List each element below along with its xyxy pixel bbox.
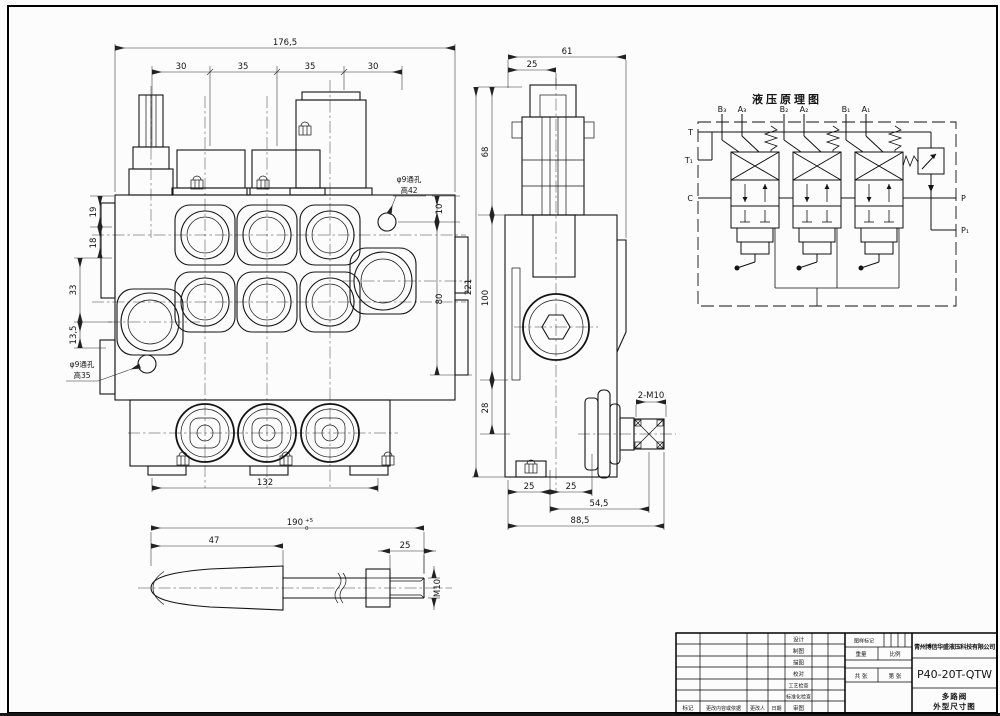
mounting-hole-top-right (378, 213, 396, 231)
lever-dimensions: 190 +5 0 47 25 M10 (151, 518, 443, 610)
engineering-drawing-sheet: 176,5 30 35 35 30 19 18 (0, 0, 1000, 716)
side-dimensions: 61 25 68 221 100 28 25 25 (464, 47, 666, 530)
dim-label-80: 80 (435, 294, 445, 305)
side-body-outline (505, 85, 664, 478)
title-block: 设计 制图 描图 校对 工艺检查 标准化检查 审图 标记 更改内容或依据 更改人… (676, 633, 997, 713)
dim-label-33: 33 (69, 285, 79, 296)
hole-note-top-right: φ9通孔 高42 (389, 174, 426, 214)
hole-note-text: 高42 (400, 185, 417, 195)
hole-note-bottom-left: φ9通孔 高35 (66, 359, 140, 381)
tolerance-lower: 0 (305, 526, 309, 532)
port-label-b2: B₂ (780, 105, 789, 114)
drawing-canvas: 176,5 30 35 35 30 19 18 (0, 0, 1000, 716)
titleblock-row-draft: 制图 (793, 647, 805, 655)
dim-label-foot25b: 25 (566, 482, 577, 492)
drawing-title-line2: 外型尺寸图 (933, 701, 976, 711)
port-label-t: T (687, 128, 693, 137)
port-label-b1: B₁ (842, 105, 851, 114)
dim-label-25: 25 (400, 541, 411, 551)
port-label-p1: P₁ (961, 226, 969, 235)
port-label-b3: B₃ (718, 105, 727, 114)
front-view: 176,5 30 35 35 30 19 18 (66, 38, 472, 492)
titleblock-row-design: 设计 (793, 636, 805, 644)
dim-label-s2: 35 (238, 62, 249, 72)
valve-section-1 (846, 114, 903, 271)
dim-label-47: 47 (209, 536, 220, 546)
front-ports (117, 205, 416, 462)
titleblock-row-standard-check: 标准化检查 (786, 694, 811, 701)
valve-section-2 (784, 114, 841, 271)
titleblock-changed-by: 更改人 (750, 705, 765, 712)
dim-label-10: 10 (435, 204, 445, 215)
titleblock-mark: 标记 (682, 704, 694, 712)
titleblock-row-process-check: 工艺检查 (788, 683, 808, 690)
titleblock-drawing-mark: 图样标记 (854, 638, 874, 645)
titleblock-weight: 重量 (855, 650, 867, 658)
side-view: 61 25 68 221 100 28 25 25 (464, 47, 676, 530)
dim-label-88-5: 88,5 (571, 516, 590, 526)
dim-label-132: 132 (257, 478, 273, 488)
port-label-a1: A₁ (862, 105, 871, 114)
titleblock-sheet-number: 第 张 (889, 672, 902, 680)
hole-note-text: φ9通孔 (70, 359, 95, 369)
valve-section-3 (722, 114, 779, 271)
port-label-a2: A₂ (800, 105, 809, 114)
titleblock-scale: 比例 (889, 650, 901, 658)
titleblock-change-content: 更改内容或依据 (706, 705, 741, 712)
drawing-title-line1: 多路阀 (942, 691, 968, 701)
dim-label-18: 18 (89, 238, 99, 249)
dim-label-total-width: 176,5 (273, 38, 297, 48)
titleblock-date: 日期 (771, 706, 781, 712)
schematic-title: 液压原理图 (752, 92, 822, 106)
dim-label-68: 68 (481, 147, 491, 158)
company-name: 青州博信华盛液压科技有限公司 (914, 643, 995, 651)
dim-label-61: 61 (562, 47, 573, 57)
tolerance-upper: +5 (305, 518, 314, 524)
drawing-number: P40-20T-QTW (917, 668, 992, 681)
hole-note-text: 高35 (73, 370, 90, 380)
dim-label-19: 19 (89, 207, 99, 218)
dim-label-13-5: 13,5 (69, 326, 79, 345)
port-label-t1: T₁ (684, 156, 693, 165)
port-label-a3: A₃ (738, 105, 747, 114)
dim-label-s4: 30 (368, 62, 379, 72)
dim-label-25: 25 (527, 60, 538, 70)
dim-label-s1: 30 (176, 62, 187, 72)
lever-drawing: 190 +5 0 47 25 M10 (138, 518, 452, 610)
dim-label-190: 190 (287, 518, 303, 528)
front-body-outline (100, 92, 468, 475)
titleblock-row-trace: 描图 (793, 659, 805, 667)
dim-label-100: 100 (481, 290, 491, 306)
dim-label-221: 221 (464, 279, 474, 295)
relief-valve-symbol (903, 132, 956, 230)
mounting-hole-bottom-left (138, 355, 156, 373)
dim-label-54-5: 54,5 (590, 499, 609, 509)
side-centerlines (514, 78, 676, 492)
dim-label-28: 28 (481, 403, 491, 414)
thread-label-2m10: 2-M10 (638, 391, 665, 401)
titleblock-row-check: 校对 (793, 670, 805, 678)
titleblock-row-review: 审图 (793, 704, 805, 712)
titleblock-sheets-total: 共 张 (855, 672, 868, 680)
dim-label-s3: 35 (305, 62, 316, 72)
port-label-c: C (687, 194, 693, 203)
port-label-p: P (961, 194, 966, 203)
dim-label-foot25a: 25 (524, 482, 535, 492)
hole-note-text: φ9通孔 (397, 174, 422, 184)
thread-label-m10: M10 (433, 579, 443, 597)
hydraulic-schematic: 液压原理图 B₃ A₃ B₂ (684, 92, 969, 306)
